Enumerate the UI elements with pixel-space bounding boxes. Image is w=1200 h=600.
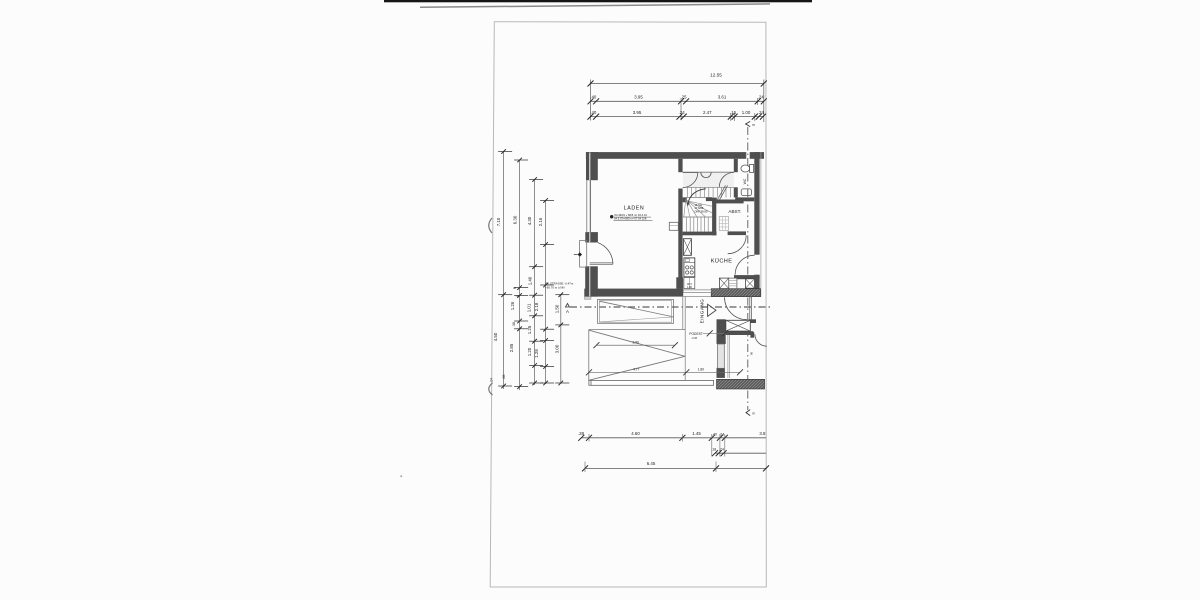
svg-text:.40: .40 (590, 95, 597, 100)
svg-text:.18: .18 (711, 448, 716, 452)
svg-text:m: m (752, 123, 755, 127)
svg-text:m: m (752, 412, 755, 416)
svg-text:1.01: 1.01 (527, 303, 532, 312)
svg-text:1.40: 1.40 (527, 276, 532, 285)
svg-text:2.18: 2.18 (534, 302, 539, 311)
svg-text:3.8: 3.8 (759, 431, 766, 436)
svg-text:.24: .24 (679, 110, 686, 115)
svg-text:.25: .25 (680, 95, 687, 100)
svg-text:1.00: 1.00 (742, 110, 751, 115)
svg-text:1.45: 1.45 (692, 431, 701, 436)
svg-text:.38: .38 (512, 322, 516, 327)
svg-text:3.61: 3.61 (718, 95, 727, 100)
svg-text:40: 40 (513, 286, 517, 290)
svg-text:1.20: 1.20 (527, 347, 532, 356)
svg-text:6.30: 6.30 (512, 215, 517, 224)
svg-text:3.00: 3.00 (554, 344, 559, 353)
svg-text:.24: .24 (490, 378, 494, 383)
svg-text:.40: .40 (712, 432, 717, 436)
svg-text:.86: .86 (502, 375, 506, 380)
svg-text:-0.88: -0.88 (691, 337, 697, 340)
svg-text:4.77: 4.77 (633, 368, 640, 372)
svg-text:LADEN: LADEN (624, 206, 645, 212)
svg-text:WC: WC (743, 178, 747, 184)
svg-text:+60.70 m ü.NN: +60.70 m ü.NN (545, 286, 565, 290)
svg-text:.24: .24 (758, 110, 765, 115)
svg-text:.24: .24 (719, 448, 724, 452)
svg-text:6.45: 6.45 (647, 461, 656, 466)
svg-text:A: A (566, 309, 569, 314)
svg-text:1.80: 1.80 (698, 368, 705, 372)
svg-text:OKF 58.80: OKF 58.80 (694, 209, 708, 213)
svg-text:3.95: 3.95 (633, 110, 642, 115)
svg-text:4.50: 4.50 (493, 332, 498, 341)
svg-text:1.28: 1.28 (534, 349, 539, 358)
svg-text:7.10: 7.10 (496, 217, 501, 226)
svg-text:04.49/01 + 86/5 m² 04.4.01: 04.49/01 + 86/5 m² 04.4.01 (615, 213, 648, 217)
svg-text:1.50: 1.50 (555, 304, 560, 313)
svg-text:1.25: 1.25 (527, 325, 532, 334)
svg-text:.40: .40 (590, 110, 597, 115)
svg-text:96: 96 (750, 352, 754, 355)
svg-text:ABST.: ABST. (728, 209, 741, 214)
svg-text:3.95: 3.95 (634, 95, 643, 100)
svg-text:3.96: 3.96 (632, 341, 639, 345)
svg-text:2.47: 2.47 (703, 110, 712, 115)
svg-text:4.30: 4.30 (527, 216, 532, 225)
svg-text:1.96: 1.96 (687, 286, 692, 289)
svg-text:.15: .15 (730, 110, 737, 115)
svg-text:2.16: 2.16 (538, 217, 543, 226)
svg-text:40: 40 (516, 294, 520, 298)
svg-text:12.55: 12.55 (710, 73, 722, 78)
svg-text:.24: .24 (758, 95, 765, 100)
svg-text:2.85: 2.85 (509, 343, 514, 352)
svg-text:1.26: 1.26 (510, 301, 515, 310)
svg-text:.38: .38 (578, 431, 585, 436)
svg-text:EINGANG: EINGANG (699, 299, 704, 324)
svg-text:KÜCHE: KÜCHE (711, 258, 733, 265)
svg-text:4.60: 4.60 (631, 431, 640, 436)
svg-text:PODEST: PODEST (689, 332, 703, 336)
